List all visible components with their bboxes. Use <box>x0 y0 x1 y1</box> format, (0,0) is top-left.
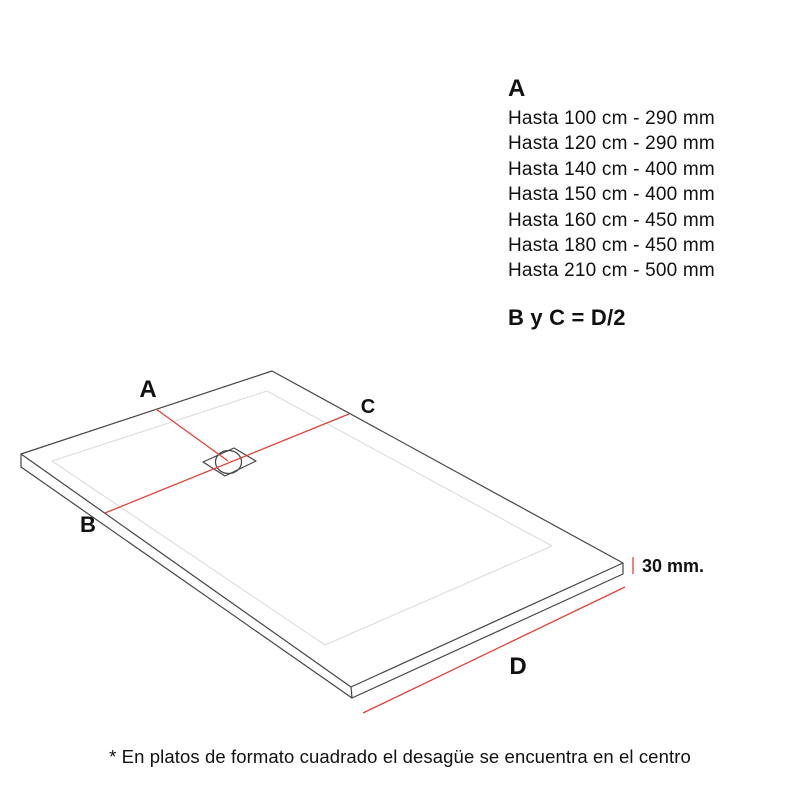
drain-circle <box>216 451 242 474</box>
label-a: A <box>139 376 156 403</box>
label-d: D <box>509 653 526 680</box>
thickness-label: 30 mm. <box>642 556 704 576</box>
dimension-line-d <box>363 587 625 713</box>
tray-top-face <box>21 371 623 687</box>
dimension-line-bc <box>105 414 349 513</box>
tray-side-edges <box>21 454 623 698</box>
footnote: * En platos de formato cuadrado el desag… <box>0 747 800 767</box>
shower-tray-diagram: A B C D 30 mm. <box>0 0 800 800</box>
dimension-line-a <box>156 409 228 461</box>
page: A Hasta 100 cm - 290 mm Hasta 120 cm - 2… <box>0 0 800 800</box>
label-c: C <box>361 396 375 418</box>
label-b: B <box>80 512 96 537</box>
tray-inner-rim <box>52 391 552 645</box>
